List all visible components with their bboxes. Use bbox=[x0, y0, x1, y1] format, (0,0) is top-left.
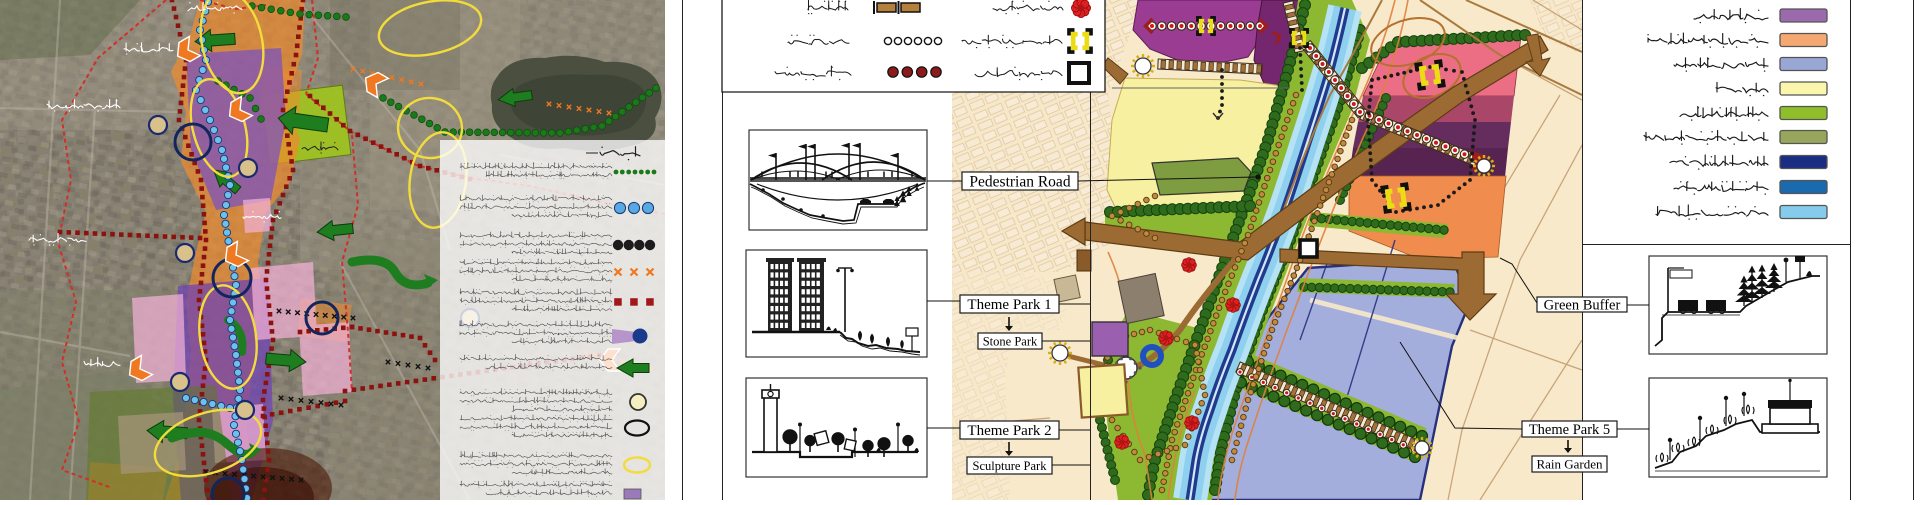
svg-text:Theme Park 1: Theme Park 1 bbox=[967, 297, 1051, 313]
svg-text:Pedestrian Road: Pedestrian Road bbox=[969, 173, 1070, 190]
svg-text:Rain Garden: Rain Garden bbox=[1536, 456, 1603, 471]
svg-text:Theme Park 2: Theme Park 2 bbox=[967, 423, 1051, 439]
svg-text:Green Buffer: Green Buffer bbox=[1544, 297, 1621, 313]
svg-text:Sculpture Park: Sculpture Park bbox=[973, 459, 1048, 473]
svg-text:Theme Park 5: Theme Park 5 bbox=[1529, 422, 1610, 438]
svg-text:Stone Park: Stone Park bbox=[983, 334, 1038, 348]
